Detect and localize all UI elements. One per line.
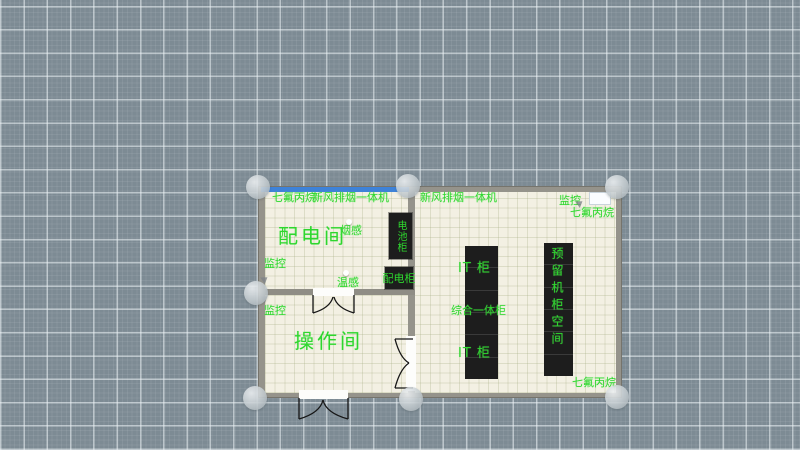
resize-handle-top-right[interactable] bbox=[605, 175, 629, 199]
resize-handle-top-left[interactable] bbox=[246, 175, 270, 199]
rack-label-it-bottom: IT 柜 bbox=[458, 342, 491, 361]
design-canvas[interactable]: 七氟丙烷 新风排烟一体机 新风排烟一体机 监控 七氟丙烷 配电间 烟感 监控 温… bbox=[0, 0, 800, 450]
agent-label-top-right: 七氟丙烷 bbox=[570, 207, 614, 219]
smoke-sensor-label: 烟感 bbox=[340, 225, 362, 237]
power-cabinet-label: 配电柜 bbox=[383, 270, 416, 286]
temperature-sensor-label: 温感 bbox=[337, 277, 359, 289]
room-label-operation-room: 操作间 bbox=[294, 330, 363, 352]
fresh-air-unit-label-left: 新风排烟一体机 bbox=[312, 192, 389, 204]
agent-label-top-left: 七氟丙烷 bbox=[272, 192, 316, 204]
double-door-exterior bbox=[299, 398, 348, 419]
battery-cabinet[interactable]: 电池柜 bbox=[389, 213, 412, 259]
battery-cabinet-label: 电池柜 bbox=[393, 220, 408, 253]
monitor-label-power-room: 监控 bbox=[264, 258, 286, 270]
rack-label-reserved-space: 预留机柜空间 bbox=[549, 247, 566, 377]
resize-handle-bottom-middle[interactable] bbox=[399, 387, 423, 411]
door-opening-machine-room bbox=[406, 336, 416, 391]
monitor-label-operation-room: 监控 bbox=[264, 305, 286, 317]
resize-handle-left-middle[interactable] bbox=[244, 281, 268, 305]
door-opening-interior bbox=[313, 288, 354, 296]
resize-handle-bottom-left[interactable] bbox=[243, 386, 267, 410]
door-opening-exterior bbox=[299, 390, 348, 399]
power-cabinet[interactable]: 配电柜 bbox=[385, 267, 413, 289]
fresh-air-unit-label-right: 新风排烟一体机 bbox=[420, 192, 497, 204]
machine-room-floor-plan[interactable]: 七氟丙烷 新风排烟一体机 新风排烟一体机 监控 七氟丙烷 配电间 烟感 监控 温… bbox=[258, 186, 622, 398]
room-label-power-room: 配电间 bbox=[278, 225, 347, 247]
rack-label-integrated: 综合一体柜 bbox=[451, 302, 506, 318]
resize-handle-top-middle[interactable] bbox=[396, 174, 420, 198]
resize-handle-bottom-right[interactable] bbox=[605, 385, 629, 409]
rack-label-it-top: IT 柜 bbox=[458, 257, 491, 276]
